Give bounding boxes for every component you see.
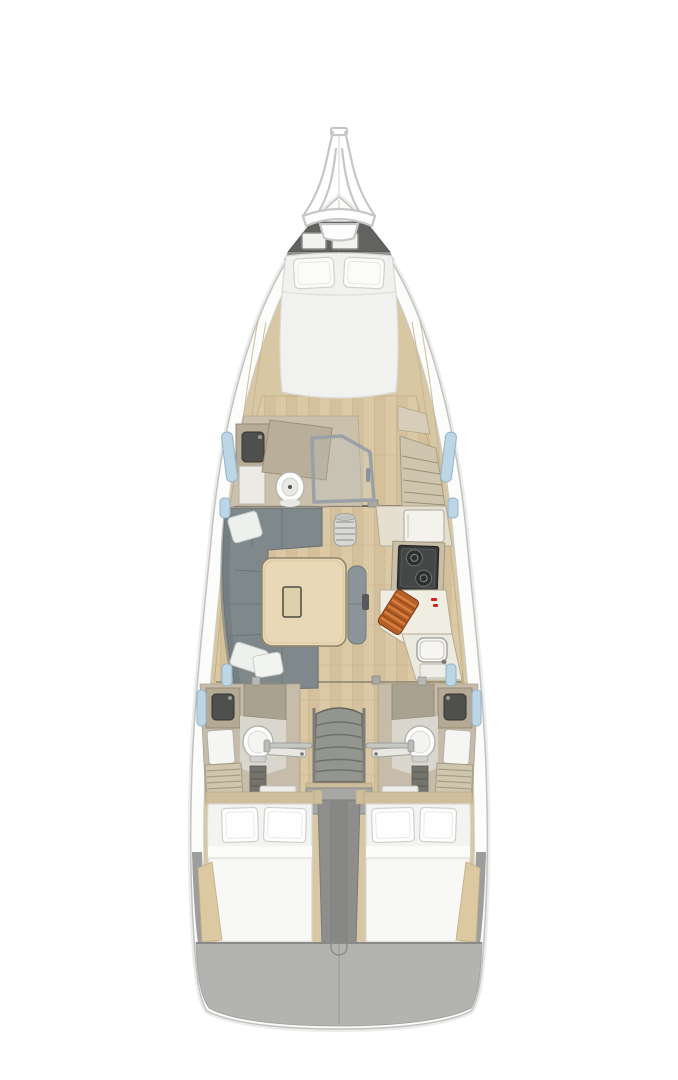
- anchor-roller: [320, 224, 358, 241]
- salon-table: [262, 558, 346, 646]
- cabinet-door: [420, 664, 446, 678]
- hull-window: [197, 690, 206, 726]
- toilet-base: [280, 499, 300, 507]
- door-handle: [366, 468, 370, 482]
- hull-window: [446, 664, 456, 686]
- stove-burner: [406, 550, 423, 567]
- starboard-aft-head: [372, 677, 478, 804]
- starboard-aft-cabin: [364, 792, 472, 942]
- forward-cabin: [280, 253, 398, 398]
- bow-pulpit: [303, 128, 375, 241]
- yacht-floor-plan: [0, 0, 678, 1080]
- port-aft-cabin: [206, 792, 314, 942]
- cabinet-front: [239, 466, 265, 504]
- mast-post: [334, 514, 356, 547]
- refrigerator: [404, 510, 444, 542]
- bench-fitting: [362, 594, 369, 610]
- floor-plan-canvas: [0, 0, 678, 1080]
- door-hinge: [372, 676, 380, 684]
- hull-window: [472, 690, 481, 726]
- hull-window: [220, 498, 230, 518]
- hull-window: [448, 498, 458, 518]
- port-aft-head: [200, 677, 306, 804]
- pillow: [252, 652, 283, 679]
- table-inset-tray: [283, 587, 301, 617]
- forward-head: [230, 416, 374, 507]
- column-center: [330, 800, 348, 944]
- stove: [397, 545, 439, 590]
- transom-deck: [196, 939, 482, 1026]
- faucet: [258, 435, 262, 439]
- galley-sink: [417, 638, 447, 662]
- hull-window: [222, 664, 232, 686]
- stove-burner: [415, 570, 432, 587]
- toilet-drain: [288, 485, 292, 489]
